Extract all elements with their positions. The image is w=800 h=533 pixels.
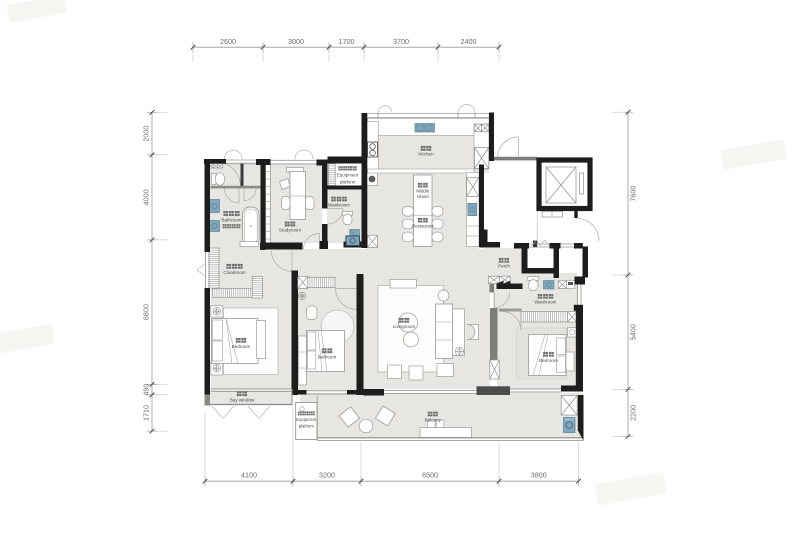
svg-text:2400: 2400	[461, 37, 477, 46]
svg-text:Bathroom: Bathroom	[222, 218, 242, 223]
svg-text:Equipment: Equipment	[296, 417, 317, 422]
svg-text:Restaurant: Restaurant	[412, 223, 434, 228]
svg-text:4100: 4100	[241, 471, 257, 480]
svg-text:Bedroom: Bedroom	[539, 358, 558, 363]
svg-text:Middle: Middle	[416, 188, 429, 193]
svg-text:3800: 3800	[531, 471, 547, 480]
svg-text:Bedroom: Bedroom	[318, 354, 337, 359]
svg-text:Washroom: Washroom	[534, 299, 556, 304]
svg-text:Bedroom: Bedroom	[232, 344, 251, 349]
svg-text:6500: 6500	[422, 471, 438, 480]
svg-text:1700: 1700	[339, 37, 355, 46]
svg-text:Island: Island	[417, 194, 429, 199]
svg-text:3200: 3200	[319, 471, 335, 480]
svg-text:2600: 2600	[220, 37, 236, 46]
svg-text:Balcony: Balcony	[425, 417, 442, 422]
svg-text:2200: 2200	[629, 405, 638, 421]
svg-text:4000: 4000	[142, 189, 151, 205]
svg-text:7600: 7600	[629, 186, 638, 202]
svg-text:platform: platform	[340, 180, 356, 185]
svg-text:Livingroom: Livingroom	[393, 324, 416, 329]
svg-text:490: 490	[142, 384, 151, 396]
svg-text:5400: 5400	[629, 324, 638, 340]
svg-text:3700: 3700	[393, 37, 409, 46]
svg-text:Washroom: Washroom	[328, 203, 350, 208]
svg-text:1710: 1710	[142, 405, 151, 421]
svg-text:Cloakroom: Cloakroom	[223, 270, 245, 275]
svg-text:Kitchen: Kitchen	[418, 152, 434, 157]
svg-text:platform: platform	[299, 423, 315, 428]
svg-text:6800: 6800	[142, 304, 151, 320]
svg-text:2000: 2000	[142, 126, 151, 142]
svg-text:3000: 3000	[288, 37, 304, 46]
svg-text:Bay window: Bay window	[230, 397, 255, 402]
svg-text:Studyroom: Studyroom	[279, 228, 301, 233]
svg-text:Equipment: Equipment	[337, 173, 359, 178]
svg-text:Porch: Porch	[498, 264, 510, 269]
